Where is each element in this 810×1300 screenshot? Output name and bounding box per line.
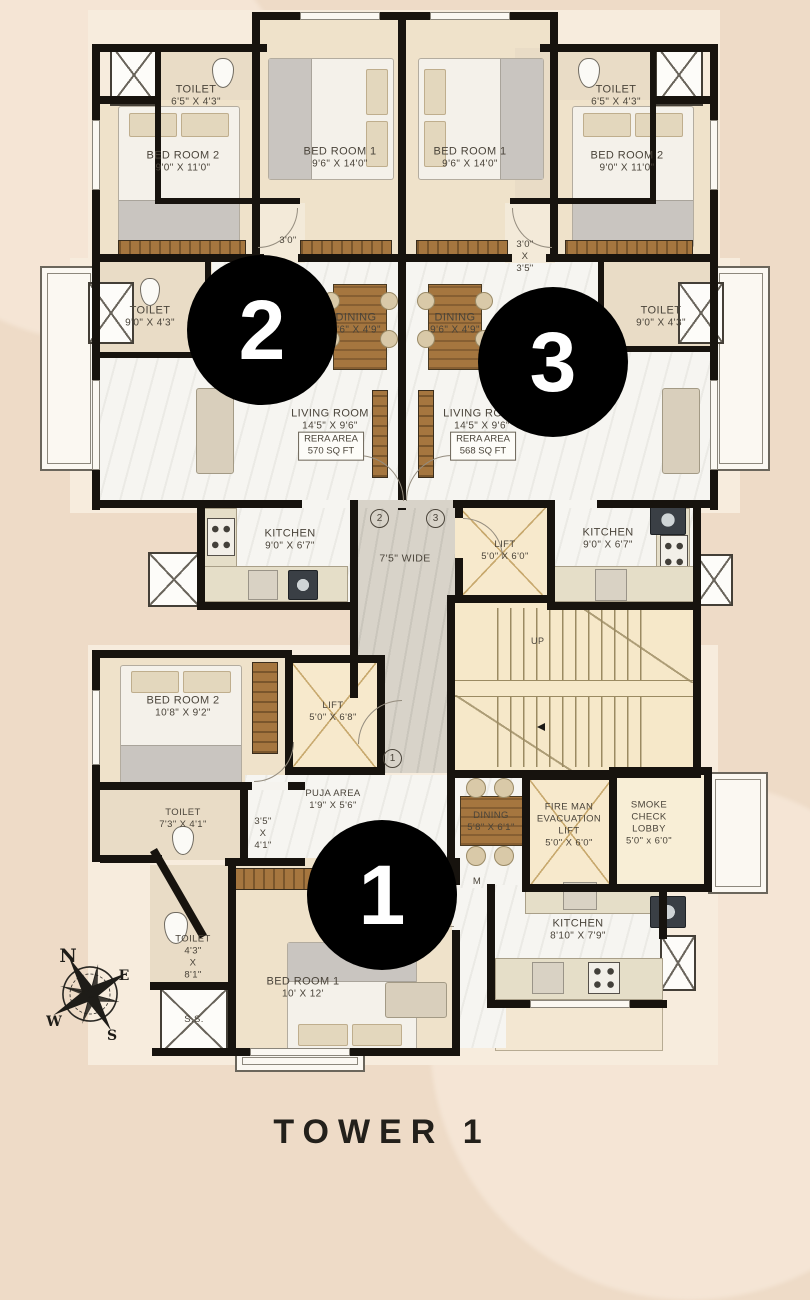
chair (475, 292, 493, 310)
chair (380, 330, 398, 348)
room-label-toilet-unit1b: TOILET4'3"X8'1" (175, 934, 210, 983)
unit-1-marker: 1 (307, 820, 457, 970)
sofa-unit1 (385, 982, 447, 1018)
room-label-toilet-mid-left: TOILET9'0" X 4'3" (125, 304, 175, 331)
wall (650, 96, 718, 104)
wall (285, 655, 385, 663)
shaft-kitchen-left (148, 552, 200, 607)
ss-shaft-label: S.S. (184, 1014, 204, 1026)
wall (197, 602, 358, 610)
wall (92, 254, 718, 262)
wall (228, 866, 236, 988)
wall (522, 884, 617, 892)
stair-diagonal-line (575, 603, 693, 683)
window (92, 380, 100, 470)
wall (228, 982, 236, 1056)
room-label-dining-unit1: DINING5'8" X 6'1" (467, 810, 515, 834)
chair (380, 292, 398, 310)
door-opening (357, 500, 453, 508)
wall (398, 12, 406, 262)
living-unit1-partial-label: M (473, 876, 481, 888)
window (710, 380, 718, 470)
room-label-lift-unit1: LIFT5'0" X 6'8" (309, 700, 357, 724)
room-label-kitchen-unit3: KITCHEN9'0" X 6'7" (582, 526, 633, 553)
floor-plan-page: { "title": "TOWER 1", "colors": { "page_… (0, 0, 810, 1169)
wall (350, 500, 358, 698)
page-title: TOWER 1 (273, 1113, 490, 1152)
stair-up-label: UP (531, 636, 545, 646)
balcony-kitchen-u1 (495, 1003, 663, 1051)
wall (693, 500, 701, 610)
bed-top-left-bed2 (118, 106, 240, 248)
room-label-toilet-unit1a: TOILET7'3" X 4'1" (159, 807, 207, 831)
room-label-kitchen-unit1: KITCHEN8'10" X 7'9" (550, 917, 606, 944)
passage-label-top-right: 3'0"X3'5" (516, 239, 533, 275)
room-label-kitchen-unit2: KITCHEN9'0" X 6'7" (264, 527, 315, 554)
window (92, 690, 100, 765)
hob-unit1 (588, 962, 620, 994)
balcony-bottom-right (708, 772, 768, 894)
wall (155, 44, 161, 204)
washing-machine-unit2 (288, 570, 318, 600)
room-label-toilet-top-left: TOILET6'5" X 4'3" (171, 83, 221, 110)
compass-center: C (86, 990, 94, 1001)
wall (240, 790, 248, 865)
chair (466, 846, 486, 866)
wardrobe-unit1-bed2 (252, 662, 278, 754)
wall (547, 500, 555, 603)
room-label-bed2-top-left: BED ROOM 29'0" X 11'0" (146, 149, 219, 176)
cabinet-unit3 (595, 569, 627, 601)
wall (693, 595, 701, 778)
wall (150, 982, 236, 990)
room-label-bed2-top-right: BED ROOM 29'0" X 11'0" (590, 149, 663, 176)
room-label-dining-unit3: DINING9'6" X 4'9" (430, 311, 480, 338)
unit-3-marker: 3 (478, 287, 628, 437)
sofa-unit2 (196, 388, 234, 474)
chair (417, 292, 435, 310)
wall (522, 772, 617, 780)
compass-rose: N E W S C (28, 932, 158, 1060)
wall (197, 500, 205, 610)
room-label-bed1-top-right: BED ROOM 19'6" X 14'0" (433, 145, 506, 172)
door-marker-3: 3 (426, 509, 445, 528)
wall (92, 96, 160, 104)
compass-east: E (119, 968, 130, 984)
door-opening (552, 500, 597, 508)
compass-west: W (45, 1014, 62, 1030)
cabinet-unit2 (248, 570, 278, 600)
compass-north: N (59, 945, 76, 967)
room-label-bed1-top-left: BED ROOM 19'6" X 14'0" (303, 145, 376, 172)
wall (609, 767, 712, 775)
room-label-living-unit2: LIVING ROOM14'5" X 9'6" (291, 407, 369, 434)
stair-direction-arrow (537, 723, 545, 731)
wall (704, 767, 712, 892)
chair (466, 778, 486, 798)
bed-unit1-bed2 (120, 665, 242, 789)
wall (92, 44, 267, 52)
sofa-unit3 (662, 388, 700, 474)
unit-2-marker: 2 (187, 255, 337, 405)
window (92, 120, 100, 190)
bed-top-right-bed2 (572, 106, 694, 248)
fridge-unit3 (650, 505, 686, 535)
stair-diagonal-line2 (455, 695, 575, 773)
room-label-bed2-unit1: BED ROOM 210'8" X 9'2" (146, 694, 219, 721)
wall (155, 198, 300, 204)
wall (92, 650, 292, 658)
passage-label-unit1: 3'5"X4'1" (254, 816, 271, 852)
staircase: UP (455, 603, 693, 773)
fridge-unit1 (650, 896, 686, 928)
wall (455, 595, 555, 603)
wall (398, 262, 406, 510)
chair (494, 778, 514, 798)
wall (650, 44, 656, 204)
rera-area-unit2: RERA AREA570 SQ FT (298, 432, 364, 461)
passage-label-top-left: 3'0" (279, 235, 296, 247)
room-label-fireman-lift: FIRE MANEVACUATIONLIFT5'0" X 6'0" (537, 802, 601, 851)
corridor-width-label: 7'5" WIDE (379, 552, 430, 565)
wall (510, 198, 656, 204)
window (300, 12, 380, 20)
room-label-smoke-lobby: SMOKECHECKLOBBY5'0" x 6'0" (626, 800, 672, 849)
wall (659, 884, 667, 939)
window (430, 12, 510, 20)
wall (540, 44, 718, 52)
window (530, 1000, 630, 1008)
room-label-lift-mid: LIFT5'0" X 6'0" (481, 539, 529, 563)
counter-unit1-bottom (495, 958, 663, 1000)
room-label-toilet-mid-right: TOILET9'0" X 4'3" (636, 304, 686, 331)
rera-area-unit3: RERA AREA568 SQ FT (450, 432, 516, 461)
door-opening (302, 500, 352, 508)
door-marker-2: 2 (370, 509, 389, 528)
door-marker-1: 1 (383, 749, 402, 768)
window (250, 1048, 350, 1056)
wall (522, 772, 530, 892)
wall (447, 595, 455, 778)
window (710, 120, 718, 190)
door-opening (252, 782, 288, 790)
chair (494, 846, 514, 866)
wall (285, 767, 385, 775)
hob-unit2 (207, 518, 235, 556)
room-label-bed1-unit1: BED ROOM 110' X 12' (266, 975, 339, 1002)
room-label-toilet-top-right: TOILET6'5" X 4'3" (591, 83, 641, 110)
room-label-puja: PUJA AREA1'9" X 5'6" (305, 788, 360, 812)
lift-door-opening (455, 518, 463, 558)
sink-unit1 (532, 962, 564, 994)
compass-south: S (107, 1028, 117, 1044)
wall (547, 602, 701, 610)
room-label-dining-unit2: DINING9'6" X 4'9" (331, 311, 381, 338)
shaft-kitchen-u1 (660, 935, 696, 991)
wall (609, 772, 617, 892)
wall (487, 884, 495, 1008)
